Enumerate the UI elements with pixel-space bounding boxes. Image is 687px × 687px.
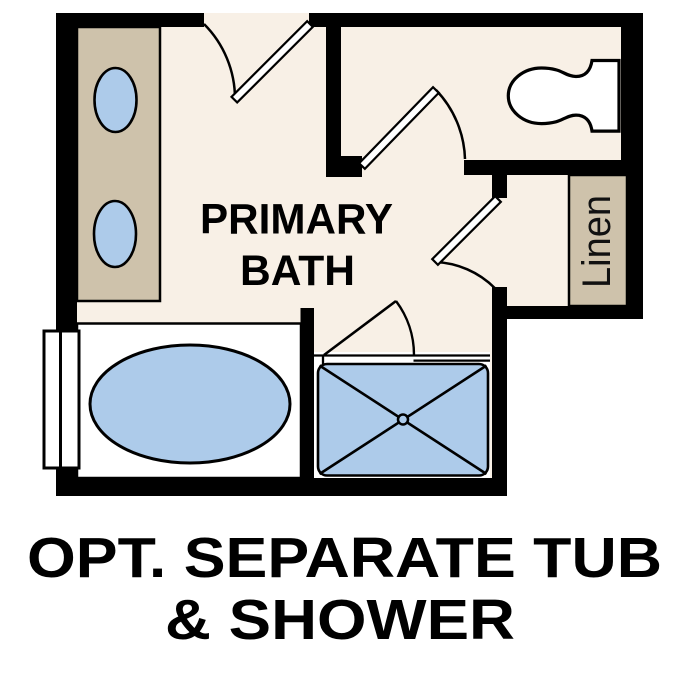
svg-text:& SHOWER: & SHOWER: [165, 588, 515, 652]
svg-text:PRIMARY: PRIMARY: [200, 197, 393, 244]
svg-text:OPT. SEPARATE TUB: OPT. SEPARATE TUB: [27, 526, 662, 590]
svg-text:Linen: Linen: [575, 195, 619, 288]
svg-text:BATH: BATH: [240, 248, 355, 295]
